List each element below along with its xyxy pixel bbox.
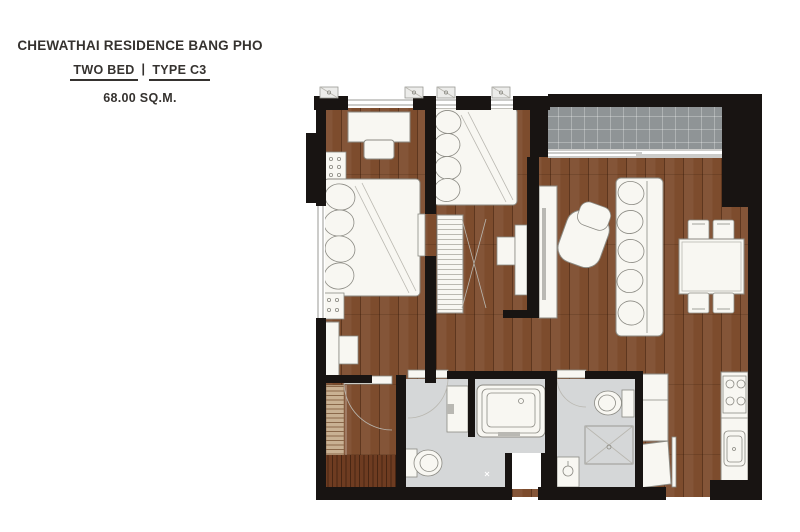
nightstand	[322, 293, 344, 319]
vanity-sink	[447, 386, 468, 432]
faucet	[447, 404, 454, 414]
dining-table	[679, 239, 744, 294]
sofa	[615, 178, 663, 336]
toilet	[405, 449, 442, 477]
balcony-floor	[548, 107, 722, 149]
window	[316, 206, 325, 318]
bed-2	[322, 179, 420, 296]
window	[348, 97, 413, 108]
tub-faucet	[498, 432, 520, 436]
dining-chair	[688, 293, 709, 313]
bedroom-2-door-leaf	[418, 214, 425, 256]
nightstand	[324, 152, 346, 183]
balcony	[548, 107, 728, 158]
sink	[557, 457, 579, 487]
toilet	[595, 390, 635, 417]
tv-screen	[542, 208, 546, 300]
window	[491, 97, 513, 108]
floorplan-svg	[0, 0, 800, 532]
floorplan-page: CHEWATHAI RESIDENCE BANG PHO TWO BED|TYP…	[0, 0, 800, 532]
dressing-stool	[497, 237, 515, 265]
ac-condenser-icon	[437, 87, 455, 98]
desk	[348, 112, 410, 142]
closet-shelving-bottom	[326, 455, 400, 487]
dining-chair	[688, 220, 709, 240]
dresser-stool	[339, 336, 358, 364]
tv-console	[539, 186, 557, 318]
bed-1	[432, 108, 517, 205]
dining-chair	[713, 220, 734, 240]
entrance-door-frame	[672, 437, 676, 487]
dining-chair	[713, 293, 734, 313]
dressing-shelf	[515, 225, 527, 295]
bathroom-2-door-leaf	[557, 370, 586, 378]
ac-condenser-icon	[405, 87, 423, 98]
ac-condenser-icon	[320, 87, 338, 98]
desk-chair	[364, 140, 394, 159]
column	[306, 133, 326, 203]
ac-condenser-icon	[492, 87, 510, 98]
bathtub	[477, 385, 545, 437]
shaft-niche	[512, 453, 541, 489]
window	[436, 97, 456, 108]
kitchen-counter	[721, 372, 748, 488]
